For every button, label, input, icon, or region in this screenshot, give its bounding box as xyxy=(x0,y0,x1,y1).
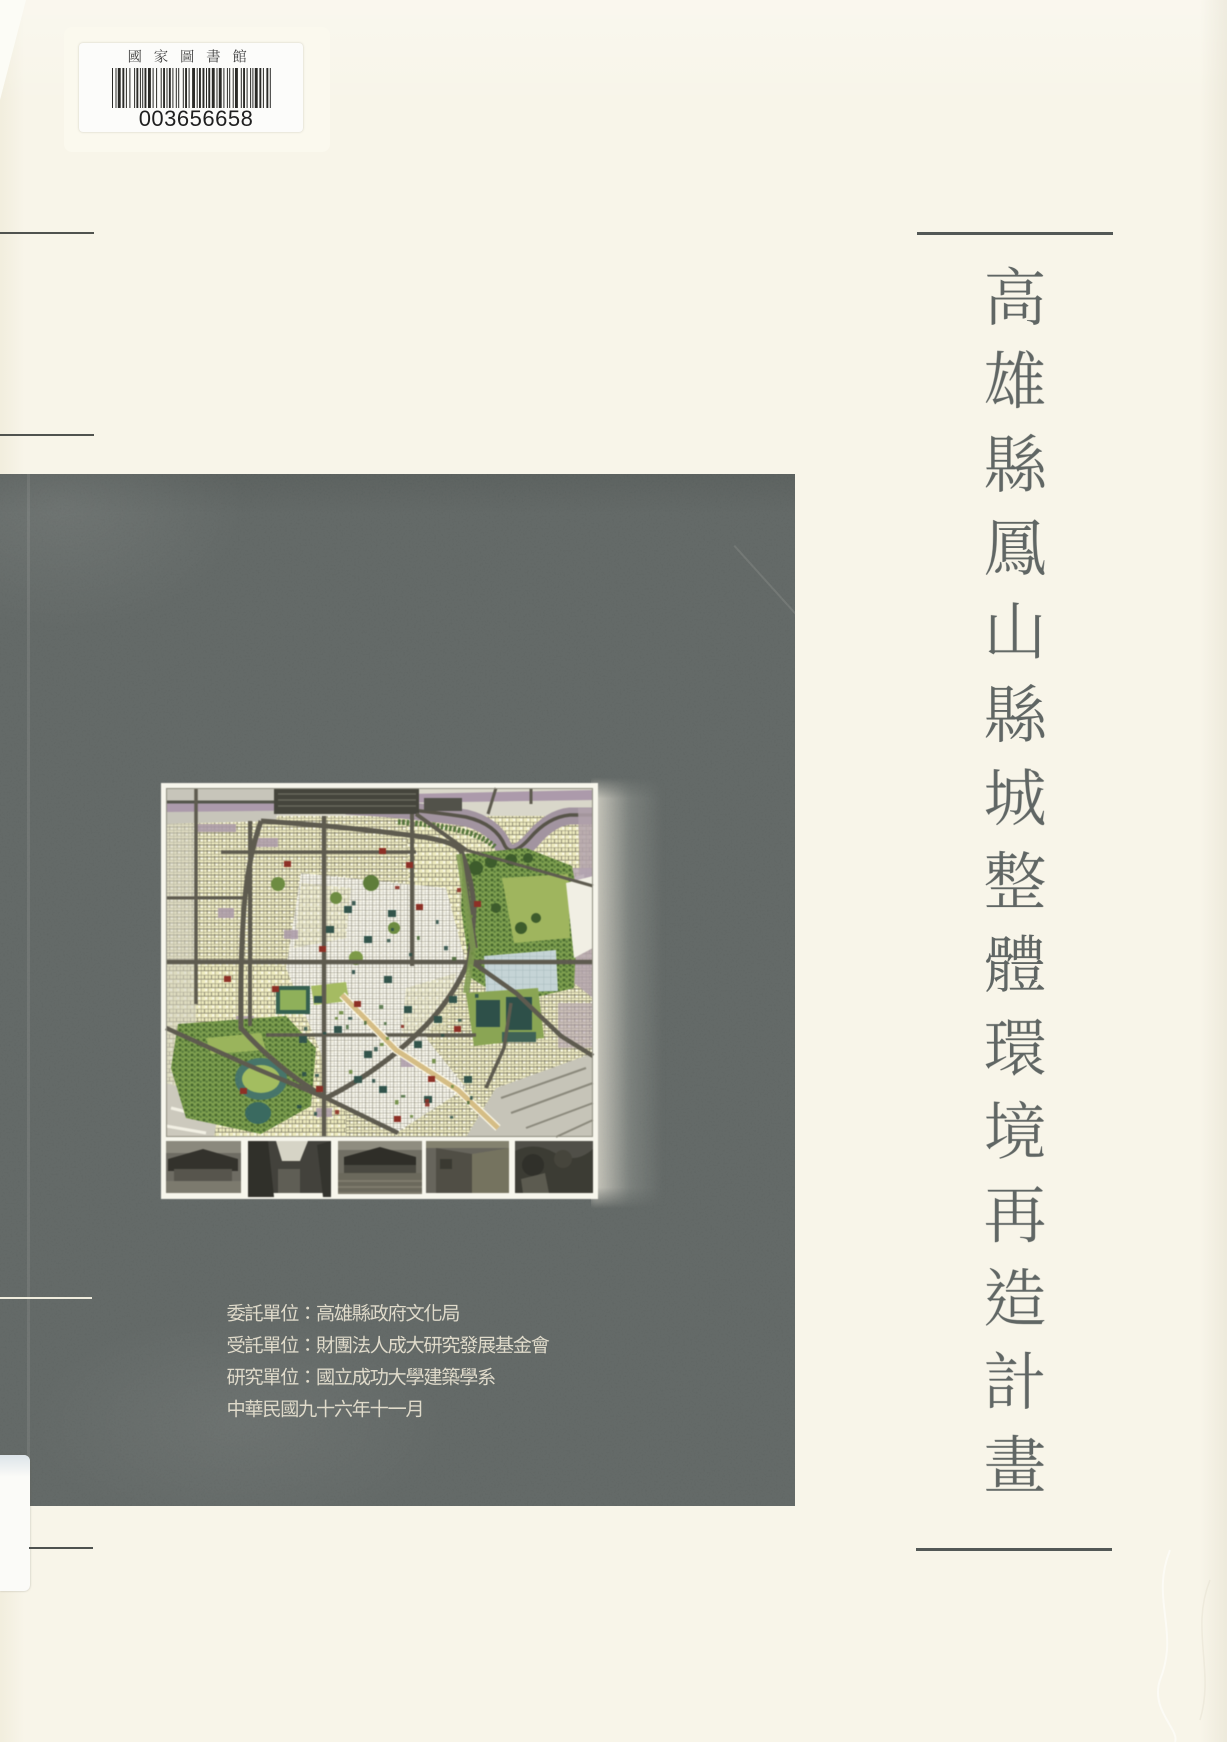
svg-text:003656658: 003656658 xyxy=(139,106,254,131)
